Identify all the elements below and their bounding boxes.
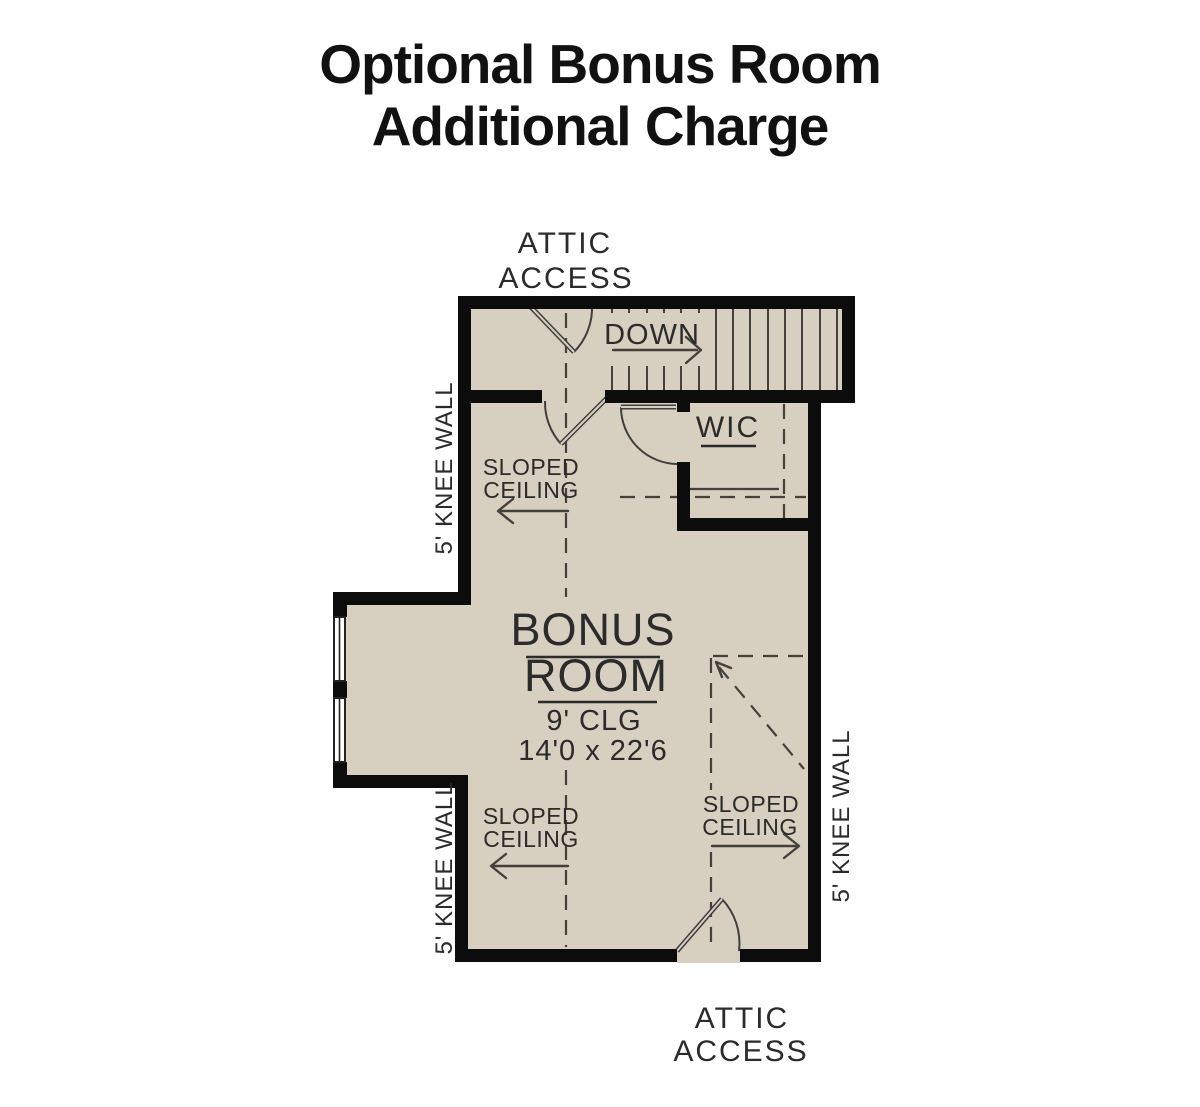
sloped-ceiling-lower-right-line2: CEILING xyxy=(702,814,798,840)
knee-wall-label-lower-left: 5' KNEE WALL xyxy=(431,781,458,954)
sloped-ceiling-upper-left-line2: CEILING xyxy=(483,477,579,503)
floor-plan-page: { "title": { "line1": "Optional Bonus Ro… xyxy=(0,0,1200,1107)
attic-access-bottom-label-line1: ATTIC xyxy=(695,1002,789,1035)
floor-plan-drawing: ATTIC ACCESS DOWN WIC SLOPED CEILING BON… xyxy=(0,0,1200,1107)
bonus-room-name-line1: BONUS xyxy=(510,604,675,655)
attic-access-top-label-line2: ACCESS xyxy=(498,262,633,295)
bonus-room-ceiling-height: 9' CLG xyxy=(546,705,641,737)
wic-label: WIC xyxy=(696,411,760,444)
bonus-room-name-line2: ROOM xyxy=(524,650,668,701)
floor-plan: Optional Bonus Room Additional Charge xyxy=(0,0,1200,1107)
attic-access-bottom-label-line2: ACCESS xyxy=(673,1035,808,1068)
knee-wall-label-upper-left: 5' KNEE WALL xyxy=(431,381,458,554)
sloped-ceiling-lower-left-line2: CEILING xyxy=(483,826,579,852)
bonus-room-dimensions: 14'0 x 22'6 xyxy=(518,735,667,767)
knee-wall-label-right: 5' KNEE WALL xyxy=(828,729,855,902)
attic-access-top-label-line1: ATTIC xyxy=(518,227,612,260)
stairs-down-label: DOWN xyxy=(604,319,700,351)
